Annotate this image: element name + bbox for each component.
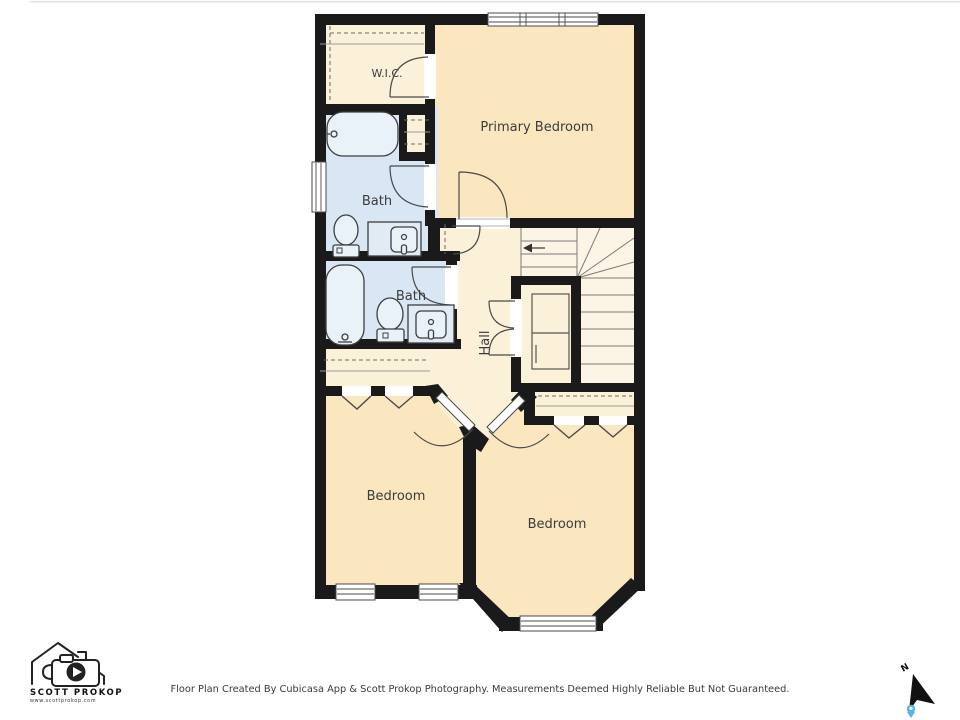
window-bedroomL-b bbox=[419, 584, 458, 600]
logo-name: SCOTT PROKOP bbox=[30, 688, 123, 698]
toilet-bowl-upper bbox=[334, 215, 358, 245]
wall-closetL-a bbox=[318, 386, 342, 396]
wall-niche-bottom bbox=[399, 152, 435, 161]
toilet-tank-lower bbox=[377, 329, 404, 342]
window-primary-top bbox=[488, 13, 598, 26]
label-bedroom-left: Bedroom bbox=[367, 489, 426, 504]
floorplan-page: W.I.C. Primary Bedroom Bath Bath Hall Be… bbox=[0, 0, 960, 720]
logo-website: www.scottprokop.com bbox=[30, 698, 96, 704]
wall-right bbox=[634, 14, 645, 591]
wall-closetL-b bbox=[371, 386, 385, 396]
wall-staircloset-right bbox=[571, 276, 581, 392]
wall-closetR-c bbox=[627, 416, 636, 425]
opening-closetR-a bbox=[554, 416, 584, 425]
opening-wic-door bbox=[424, 54, 436, 99]
wall-primary-bottom-a bbox=[428, 218, 456, 228]
top-edge-line bbox=[30, 1, 960, 2]
window-bay bbox=[520, 616, 596, 631]
label-bedroom-right: Bedroom bbox=[528, 517, 587, 532]
label-primary-bedroom: Primary Bedroom bbox=[480, 120, 593, 135]
wall-primary-bottom-b bbox=[510, 218, 645, 228]
wall-closetR-a bbox=[524, 416, 554, 425]
room-wic bbox=[318, 18, 434, 114]
opening-bath1-door bbox=[424, 164, 436, 210]
compass: N bbox=[900, 662, 936, 718]
label-hall: Hall bbox=[478, 331, 493, 356]
opening-closetR-b bbox=[599, 416, 627, 425]
opening-closetL-b bbox=[385, 386, 413, 396]
disclaimer-text: Floor Plan Created By Cubicasa App & Sco… bbox=[171, 684, 790, 695]
wall-left bbox=[315, 14, 326, 599]
closet-left-fill bbox=[320, 348, 432, 392]
opening-closetL-a bbox=[342, 386, 371, 396]
wall-staircloset-top bbox=[511, 276, 581, 285]
sink-faucet-upper bbox=[402, 245, 407, 254]
label-bath-lower: Bath bbox=[396, 289, 426, 304]
floorplan-canvas: W.I.C. Primary Bedroom Bath Bath Hall Be… bbox=[0, 0, 960, 720]
label-wic: W.I.C. bbox=[371, 67, 402, 80]
stair-closet-fill bbox=[517, 280, 577, 388]
bathtub-lower bbox=[326, 265, 364, 345]
compass-north-label: N bbox=[900, 662, 912, 674]
window-bath-left bbox=[312, 162, 326, 212]
scott-prokop-logo: SCOTT PROKOP www.scottprokop.com bbox=[30, 643, 123, 704]
wall-bedroom-divider bbox=[463, 438, 476, 590]
label-bath-upper: Bath bbox=[362, 194, 392, 209]
sink-faucet-lower bbox=[429, 330, 434, 339]
wall-closetR-b bbox=[584, 416, 599, 425]
opening-bath2-door bbox=[445, 265, 458, 309]
tub-faucet-upper bbox=[331, 131, 337, 137]
tub-faucet-lower bbox=[342, 334, 348, 340]
window-bedroomL-a bbox=[336, 584, 375, 600]
footer: SCOTT PROKOP www.scottprokop.com Floor P… bbox=[30, 643, 935, 718]
